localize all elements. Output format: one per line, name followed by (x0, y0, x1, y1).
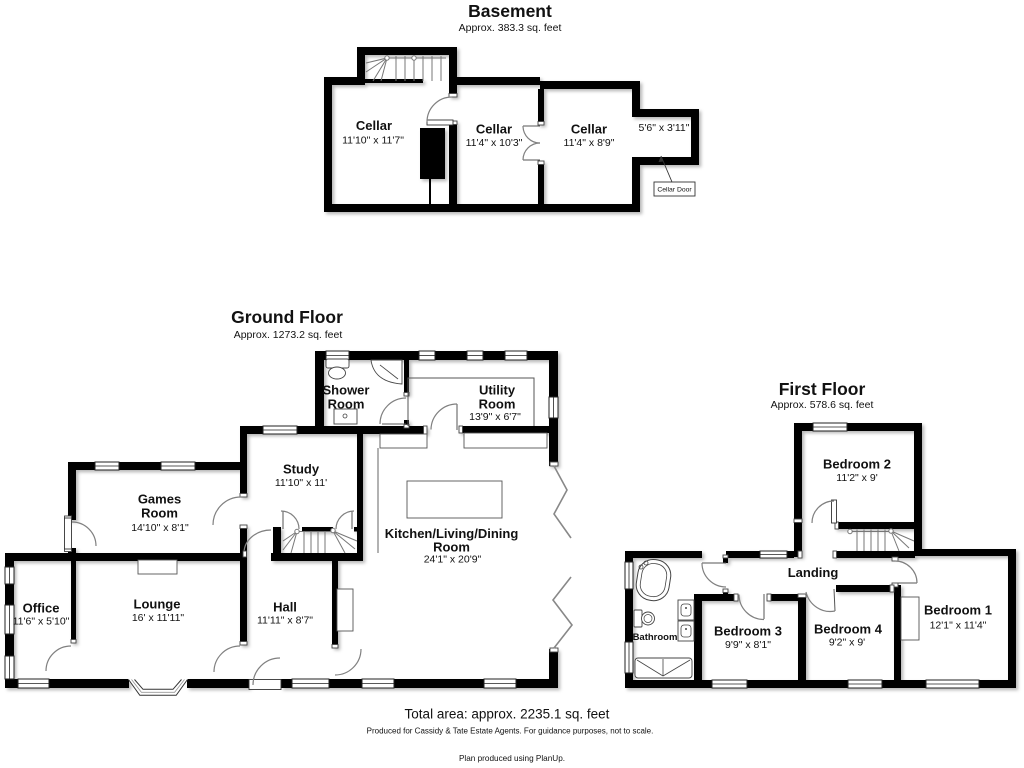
svg-text:11'2" x 9': 11'2" x 9' (836, 472, 877, 484)
svg-text:14'10" x 8'1": 14'10" x 8'1" (131, 522, 189, 534)
svg-text:9'9" x 8'1": 9'9" x 8'1" (725, 639, 771, 651)
svg-text:Hall: Hall (273, 600, 297, 615)
svg-text:Bedroom 3: Bedroom 3 (714, 624, 782, 639)
svg-text:11'4" x 8'9": 11'4" x 8'9" (564, 137, 615, 149)
svg-text:Room: Room (141, 506, 178, 521)
svg-text:Produced for Cassidy & Tate Es: Produced for Cassidy & Tate Estate Agent… (367, 727, 654, 736)
svg-text:Approx. 578.6 sq. feet: Approx. 578.6 sq. feet (771, 399, 874, 411)
svg-text:Bathroom: Bathroom (633, 632, 678, 643)
svg-text:11'10" x 11': 11'10" x 11' (275, 477, 327, 489)
svg-text:Cellar: Cellar (356, 118, 392, 133)
svg-text:11'10" x 11'7": 11'10" x 11'7" (342, 135, 404, 147)
svg-text:9'2" x 9': 9'2" x 9' (829, 637, 865, 649)
svg-text:Study: Study (283, 462, 320, 477)
svg-text:Ground Floor: Ground Floor (231, 307, 343, 327)
svg-text:13'9" x 6'7": 13'9" x 6'7" (469, 411, 521, 423)
svg-text:First Floor: First Floor (779, 379, 866, 399)
svg-text:Approx. 1273.2 sq. feet: Approx. 1273.2 sq. feet (234, 329, 343, 341)
svg-text:Total area: approx. 2235.1 sq.: Total area: approx. 2235.1 sq. feet (405, 707, 610, 722)
svg-text:Shower: Shower (323, 383, 370, 398)
svg-text:Lounge: Lounge (134, 597, 181, 612)
svg-text:Games: Games (138, 492, 181, 507)
svg-text:Bedroom 1: Bedroom 1 (924, 603, 992, 618)
svg-text:Cellar Door: Cellar Door (657, 187, 692, 194)
svg-text:16' x 11'11": 16' x 11'11" (132, 612, 185, 624)
svg-text:5'6" x 3'11": 5'6" x 3'11" (639, 122, 690, 134)
svg-text:Office: Office (23, 601, 60, 616)
svg-text:Cellar: Cellar (476, 122, 512, 137)
svg-text:Cellar: Cellar (571, 122, 607, 137)
svg-text:Room: Room (433, 540, 470, 555)
svg-text:11'6" x 5'10": 11'6" x 5'10" (13, 616, 70, 628)
svg-text:Utility: Utility (479, 383, 516, 398)
svg-text:Basement: Basement (468, 1, 552, 21)
svg-text:11'11" x 8'7": 11'11" x 8'7" (257, 615, 313, 627)
svg-text:12'1" x 11'4": 12'1" x 11'4" (930, 620, 987, 632)
svg-text:Room: Room (479, 397, 516, 412)
svg-text:11'4" x 10'3": 11'4" x 10'3" (466, 137, 523, 149)
svg-text:Landing: Landing (788, 565, 839, 580)
svg-text:Room: Room (328, 397, 365, 412)
svg-text:Bedroom 4: Bedroom 4 (814, 622, 883, 637)
svg-text:Plan produced using PlanUp.: Plan produced using PlanUp. (459, 754, 565, 763)
svg-text:Bedroom 2: Bedroom 2 (823, 457, 891, 472)
svg-text:Approx. 383.3 sq. feet: Approx. 383.3 sq. feet (459, 22, 562, 34)
svg-text:24'1" x 20'9": 24'1" x 20'9" (424, 554, 482, 566)
